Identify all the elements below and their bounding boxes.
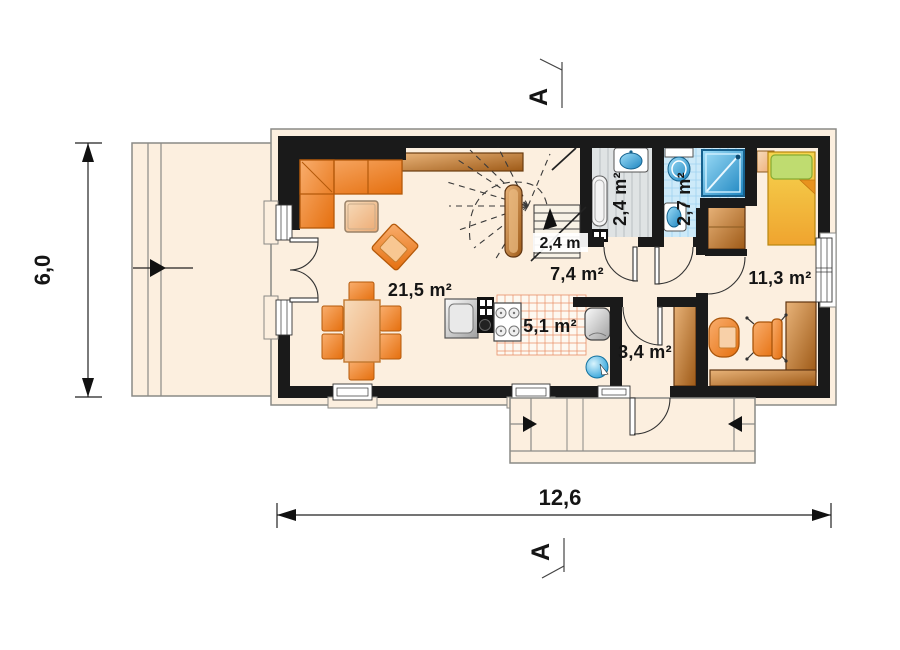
bed bbox=[768, 152, 815, 245]
window bbox=[333, 384, 372, 400]
bath-door-leaf bbox=[655, 247, 659, 284]
kitchen-sink bbox=[445, 299, 478, 338]
room-label-hall: 7,4 m² bbox=[550, 264, 604, 284]
entry-sidelight bbox=[598, 386, 630, 398]
window bbox=[276, 300, 292, 335]
entry-hall-door-leaf bbox=[658, 307, 662, 345]
dimension-width: 12,6 bbox=[277, 485, 831, 528]
height-dim-label: 6,0 bbox=[30, 255, 55, 286]
floor-plan: 2,4 m 21,5 m² 7,4 m² 2,4 m² 2,7 m² 11,3 … bbox=[0, 0, 900, 650]
dining-chair bbox=[380, 334, 401, 359]
room-label-kitchen: 5,1 m² bbox=[523, 316, 577, 336]
window bbox=[816, 238, 832, 302]
room-label-bathroom: 2,7 m² bbox=[674, 172, 694, 226]
shower bbox=[702, 150, 744, 196]
dining-chair bbox=[380, 306, 401, 331]
stair-height-label: 2,4 m bbox=[540, 235, 581, 252]
dining-chair bbox=[349, 282, 374, 301]
section-label-top: A bbox=[525, 88, 553, 106]
wc-door-leaf bbox=[633, 247, 637, 281]
dining-chair bbox=[322, 306, 343, 331]
floor-plan-canvas: 2,4 m 21,5 m² 7,4 m² 2,4 m² 2,7 m² 11,3 … bbox=[0, 0, 900, 650]
terrace bbox=[132, 143, 272, 396]
dim-arrow-up-icon bbox=[82, 143, 94, 162]
width-dim-label: 12,6 bbox=[539, 485, 582, 510]
room-label-entry: 3,4 m² bbox=[618, 342, 672, 362]
bedroom-armchair bbox=[709, 318, 739, 357]
dining-chair bbox=[322, 334, 343, 359]
window bbox=[276, 205, 292, 240]
section-marker-bottom: A bbox=[527, 538, 564, 578]
dining-chair bbox=[349, 361, 374, 380]
entry-closet bbox=[674, 303, 696, 386]
dim-arrow-right-icon bbox=[812, 509, 831, 521]
fridge bbox=[585, 308, 610, 340]
dimension-height: 6,0 bbox=[30, 143, 102, 397]
water-ball bbox=[586, 356, 608, 378]
section-label-bottom: A bbox=[527, 543, 555, 561]
dim-arrow-down-icon bbox=[82, 378, 94, 397]
porch bbox=[510, 398, 755, 463]
dining-table bbox=[344, 300, 380, 362]
coffee-table bbox=[345, 201, 378, 232]
kitchen-counter bbox=[477, 297, 494, 333]
dim-arrow-left-icon bbox=[277, 509, 296, 521]
french-door-leaf bbox=[290, 238, 318, 242]
bedroom-wardrobe bbox=[708, 206, 745, 249]
stove bbox=[494, 303, 521, 341]
room-label-living: 21,5 m² bbox=[388, 280, 452, 300]
sideboard bbox=[402, 153, 523, 171]
wc-sink bbox=[614, 148, 648, 172]
room-label-wc: 2,4 m² bbox=[610, 172, 630, 226]
water-heater bbox=[592, 176, 607, 226]
room-label-bedroom: 11,3 m² bbox=[748, 268, 811, 288]
bedroom-door-leaf bbox=[705, 249, 747, 256]
section-marker-top: A bbox=[525, 59, 562, 108]
french-door-leaf bbox=[290, 298, 318, 302]
